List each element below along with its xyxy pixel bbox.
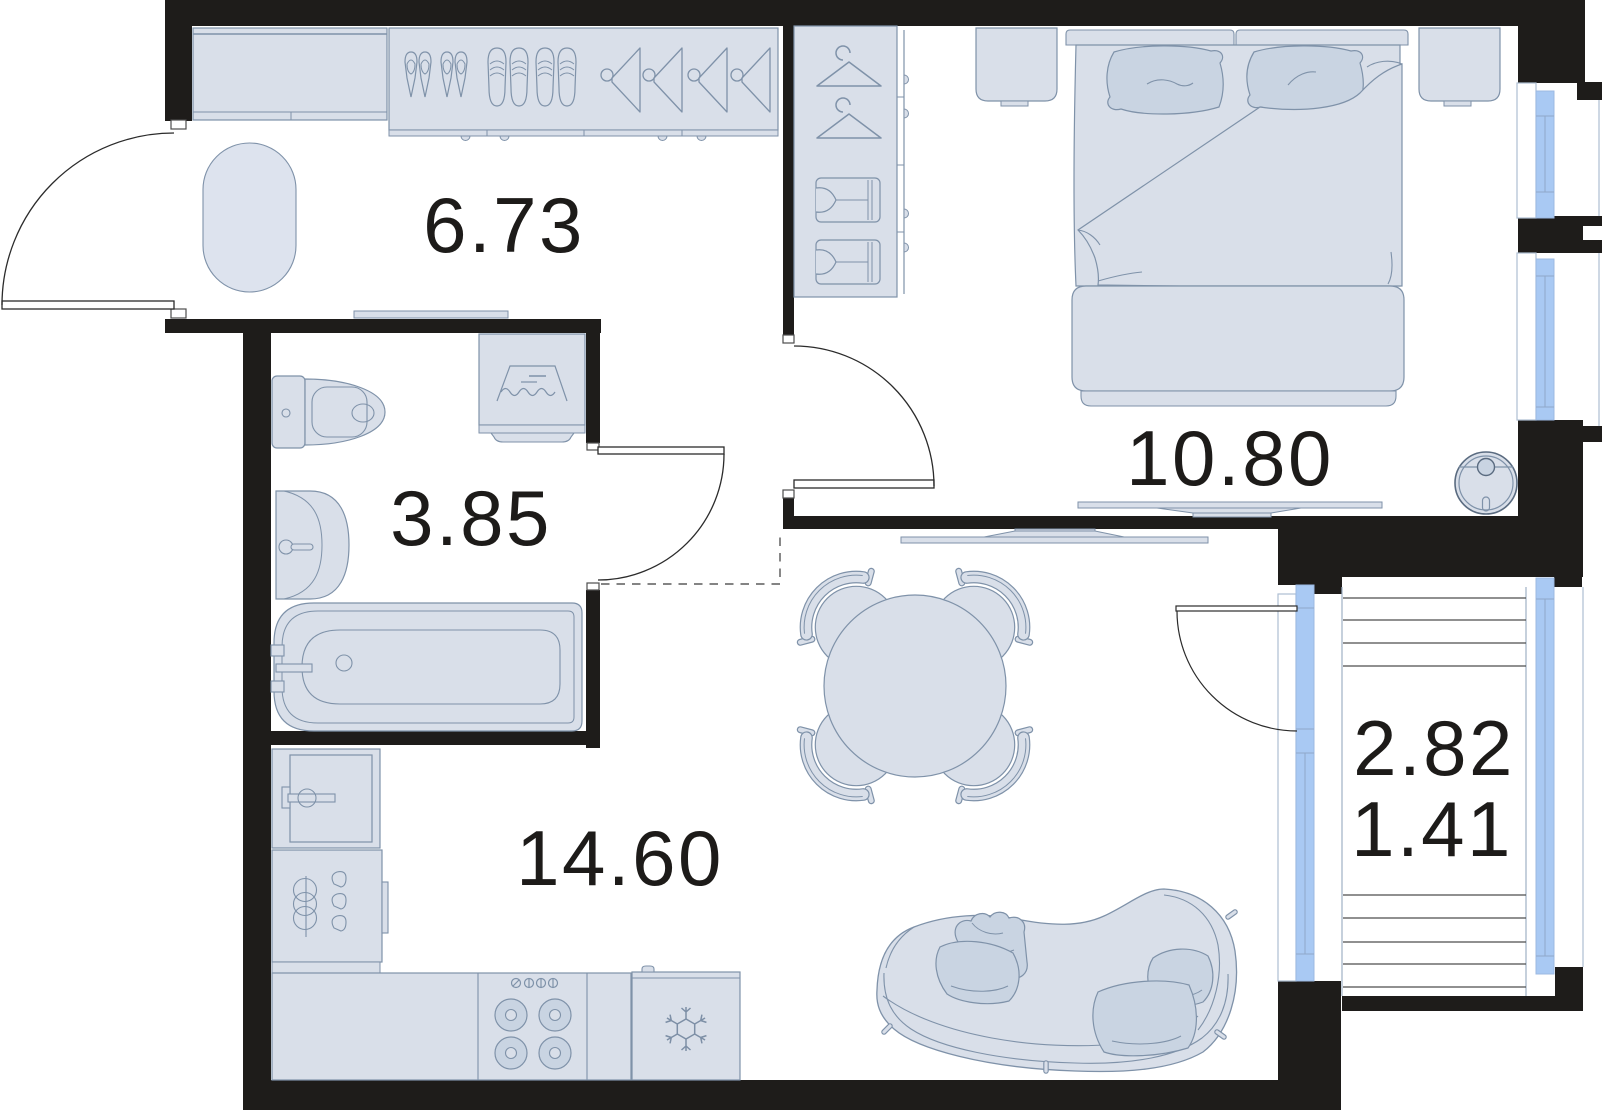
svg-text:3.85: 3.85	[390, 474, 552, 562]
svg-text:6.73: 6.73	[423, 181, 585, 269]
svg-text:1.41: 1.41	[1351, 785, 1513, 873]
svg-text:2.82: 2.82	[1353, 704, 1515, 792]
svg-text:14.60: 14.60	[516, 814, 724, 902]
svg-text:10.80: 10.80	[1126, 414, 1334, 502]
